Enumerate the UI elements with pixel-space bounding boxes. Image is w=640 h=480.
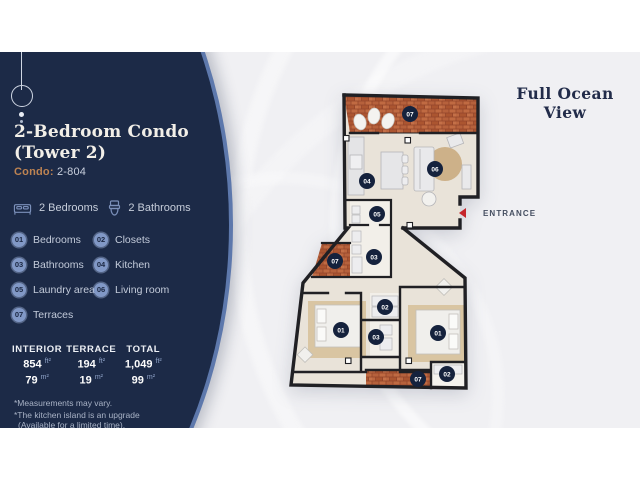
measurement-header: TERRACE (66, 344, 116, 355)
measurements-table: INTERIOR 854 ft² 79 m² TERRACE 194 ft² 1… (12, 344, 166, 386)
measurement-ft-unit: ft² (45, 358, 51, 365)
measurement-m-value: 19 (80, 374, 92, 386)
measurement-m-unit: m² (95, 374, 103, 381)
measurement-m-unit: m² (147, 374, 155, 381)
room-marker-number: 06 (431, 166, 439, 173)
decorative-circle (11, 85, 33, 107)
measurement-m-unit: m² (41, 374, 49, 381)
legend-number-badge: 06 (94, 283, 108, 297)
entrance-arrow-icon (459, 208, 466, 218)
measurement-column: INTERIOR 854 ft² 79 m² (12, 344, 62, 386)
legend-item: 03 Bathrooms (12, 257, 94, 272)
content-band: 070406050703020301010207 ENTRANCE Full O… (0, 52, 640, 428)
footnote-line: (Available for a limited time). (14, 419, 140, 428)
legend-label: Bathrooms (33, 259, 84, 271)
bedrooms-feature: 2 Bedrooms (13, 200, 98, 216)
page-title: 2-Bedroom Condo (Tower 2) (14, 122, 204, 164)
legend-item: 07 Terraces (12, 307, 94, 322)
legend-number-badge: 01 (12, 233, 26, 247)
legend-number-badge: 07 (12, 308, 26, 322)
measurement-header: TOTAL (120, 344, 166, 355)
legend-item: 06 Living room (94, 282, 194, 297)
toilet-icon (108, 200, 121, 216)
bedrooms-feature-label: 2 Bedrooms (39, 202, 98, 214)
floor-plan: 070406050703020301010207 (288, 85, 488, 397)
decorative-dot (19, 112, 24, 117)
condo-number: Condo: 2-804 (14, 166, 86, 178)
legend-label: Terraces (33, 309, 73, 321)
bathrooms-feature: 2 Bathrooms (108, 200, 190, 216)
legend-item: 05 Laundry area (12, 282, 94, 297)
room-marker-number: 03 (372, 334, 380, 341)
legend-item: 02 Closets (94, 232, 194, 247)
legend-label: Closets (115, 234, 150, 246)
legend-item: 04 Kitchen (94, 257, 194, 272)
brochure-page: 070406050703020301010207 ENTRANCE Full O… (0, 0, 640, 480)
title-line-1: 2-Bedroom Condo (14, 122, 204, 143)
view-title: Full Ocean View (495, 84, 635, 122)
room-marker-number: 07 (406, 111, 414, 118)
entrance-label: ENTRANCE (483, 209, 536, 218)
legend-number-badge: 03 (12, 258, 26, 272)
room-marker-number: 03 (370, 254, 378, 261)
legend-item: 01 Bedrooms (12, 232, 94, 247)
measurement-ft-unit: ft² (99, 358, 105, 365)
measurement-column: TOTAL 1,049 ft² 99 m² (120, 344, 166, 386)
bathrooms-feature-label: 2 Bathrooms (128, 202, 190, 214)
room-marker-number: 01 (337, 327, 345, 334)
measurement-header: INTERIOR (12, 344, 62, 355)
room-marker-number: 02 (381, 304, 389, 311)
measurement-m-value: 79 (25, 374, 37, 386)
footnote-line: *Measurements may vary. (14, 397, 140, 409)
bed-icon (13, 200, 32, 216)
title-line-2: (Tower 2) (14, 143, 204, 164)
measurement-ft-value: 194 (77, 359, 95, 371)
measurement-column: TERRACE 194 ft² 19 m² (66, 344, 116, 386)
footnotes: *Measurements may vary. *The kitchen isl… (14, 392, 140, 428)
legend-label: Living room (115, 284, 169, 296)
legend-number-badge: 02 (94, 233, 108, 247)
feature-summary: 2 Bedrooms 2 Bathrooms (13, 200, 191, 216)
measurement-ft-value: 1,049 (125, 359, 153, 371)
room-marker-number: 07 (414, 376, 422, 383)
measurement-ft-value: 854 (23, 359, 41, 371)
condo-label: Condo: (14, 166, 54, 178)
room-marker-number: 05 (373, 211, 381, 218)
measurement-ft-unit: ft² (156, 358, 162, 365)
room-marker-number: 07 (331, 258, 339, 265)
measurement-m-value: 99 (132, 374, 144, 386)
condo-value: 2-804 (57, 166, 86, 178)
room-legend: 01 Bedrooms 02 Closets 03 Bathrooms 04 K… (12, 232, 194, 322)
legend-number-badge: 05 (12, 283, 26, 297)
room-marker-number: 02 (443, 371, 451, 378)
room-marker-number: 01 (434, 330, 442, 337)
legend-label: Kitchen (115, 259, 150, 271)
legend-number-badge: 04 (94, 258, 108, 272)
room-marker-number: 04 (363, 178, 371, 185)
legend-label: Laundry area (33, 284, 95, 296)
legend-label: Bedrooms (33, 234, 81, 246)
